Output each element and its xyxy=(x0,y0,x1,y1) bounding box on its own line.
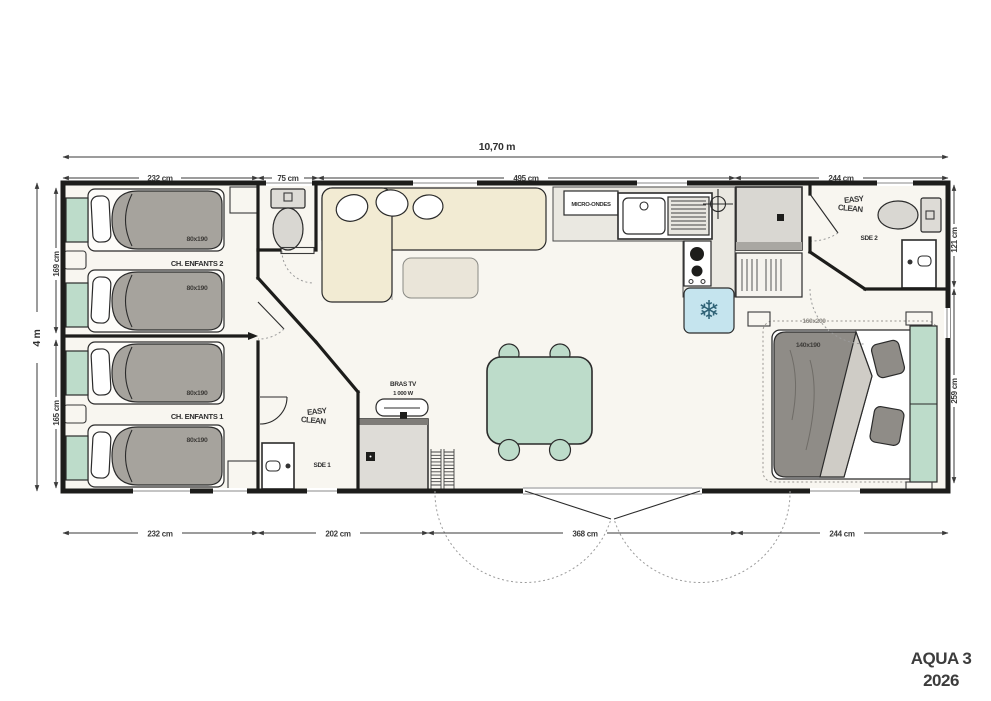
floorplan-page: 80x190 80x190 CH. ENFANTS 2 80x190 xyxy=(0,0,991,701)
tv-foot xyxy=(400,412,407,419)
burner-small xyxy=(692,266,703,277)
window xyxy=(810,488,860,494)
bed-duvet xyxy=(112,272,222,330)
tv-bracket-label: BRAS TV xyxy=(390,381,417,388)
bed-size-label: 140x190 xyxy=(796,342,821,349)
dimensions-top: 10,70 m 232 cm 75 cm 495 cm 244 cm xyxy=(63,141,948,183)
bed-size-label: 80x190 xyxy=(187,285,208,292)
toilet-bowl xyxy=(878,201,918,229)
model-year: 2026 xyxy=(923,671,959,690)
pillow xyxy=(91,432,111,479)
entry-doors xyxy=(435,487,790,583)
tv-cabinet-top xyxy=(358,419,428,425)
dresser xyxy=(736,253,802,297)
dim-top-4: 244 cm xyxy=(828,174,854,183)
dim-left-2: 165 cm xyxy=(52,400,61,426)
window xyxy=(133,488,190,494)
dim-right-1: 121 cm xyxy=(950,227,959,253)
window xyxy=(877,180,913,186)
headboard-shelf xyxy=(66,283,88,327)
dimensions-bottom: 232 cm 202 cm 368 cm 244 cm xyxy=(63,530,948,539)
dim-overall-width: 10,70 m xyxy=(479,141,515,153)
window xyxy=(944,308,950,338)
dim-bottom-4: 244 cm xyxy=(829,530,855,539)
bed-size-label: 80x190 xyxy=(187,437,208,444)
dim-left-1: 169 cm xyxy=(52,251,61,277)
headboard-shelf xyxy=(66,198,88,242)
stool xyxy=(499,440,520,461)
wardrobe-plinth xyxy=(736,242,802,250)
dim-bottom-2: 202 cm xyxy=(325,530,351,539)
fridge-snowflake-icon: ❄ xyxy=(698,295,720,325)
bed-size-label: 80x190 xyxy=(187,236,208,243)
window xyxy=(307,488,337,494)
toilet-bowl xyxy=(273,208,303,250)
window xyxy=(637,180,687,186)
dimensions-right: 121 cm 259 cm xyxy=(950,185,959,483)
wardrobe xyxy=(736,187,802,250)
pillow xyxy=(91,196,111,243)
dimensions-left: 4 m 169 cm 165 cm xyxy=(31,183,61,491)
bed-size-label: 80x190 xyxy=(187,390,208,397)
window xyxy=(213,488,247,494)
basin-tap xyxy=(908,260,913,265)
stool xyxy=(550,440,571,461)
room-label-kids2: CH. ENFANTS 2 xyxy=(171,259,223,268)
sink-bowl xyxy=(623,198,665,234)
room-label-kids1: CH. ENFANTS 1 xyxy=(171,412,223,421)
coffee-table xyxy=(403,258,478,298)
headboard-shelf xyxy=(66,351,88,395)
brand-plate: AQUA 3 2026 xyxy=(911,649,972,690)
door-swing-arc xyxy=(614,491,790,583)
toilet-cistern xyxy=(921,198,941,232)
room-label-sde1: SDE 1 xyxy=(314,462,332,469)
pillow xyxy=(91,349,111,396)
dim-top-1: 232 cm xyxy=(147,174,173,183)
dim-top-2: 75 cm xyxy=(277,174,298,183)
bed-duvet xyxy=(112,427,222,485)
room-label-sde2: SDE 2 xyxy=(861,235,879,242)
headboard-shelf xyxy=(66,436,88,480)
floorplan-svg: 80x190 80x190 CH. ENFANTS 2 80x190 xyxy=(0,0,991,701)
toilet-cistern xyxy=(271,189,305,208)
door-leaf xyxy=(525,491,700,519)
pillow xyxy=(869,406,905,447)
dim-right-2: 259 cm xyxy=(950,378,959,404)
tv-power-label: 1 000 W xyxy=(393,391,414,397)
dim-bottom-3: 368 cm xyxy=(572,530,598,539)
basin-tap xyxy=(286,464,291,469)
dim-overall-depth: 4 m xyxy=(31,329,43,346)
window xyxy=(413,180,477,186)
model-name: AQUA 3 xyxy=(911,649,972,668)
wardrobe-handle xyxy=(777,214,784,221)
burner-large xyxy=(690,247,704,261)
dining-table xyxy=(487,357,592,444)
pillow xyxy=(91,277,111,324)
microwave-label: MICRO-ONDES xyxy=(571,202,611,208)
dim-top-3: 495 cm xyxy=(513,174,539,183)
dim-bottom-1: 232 cm xyxy=(147,530,173,539)
